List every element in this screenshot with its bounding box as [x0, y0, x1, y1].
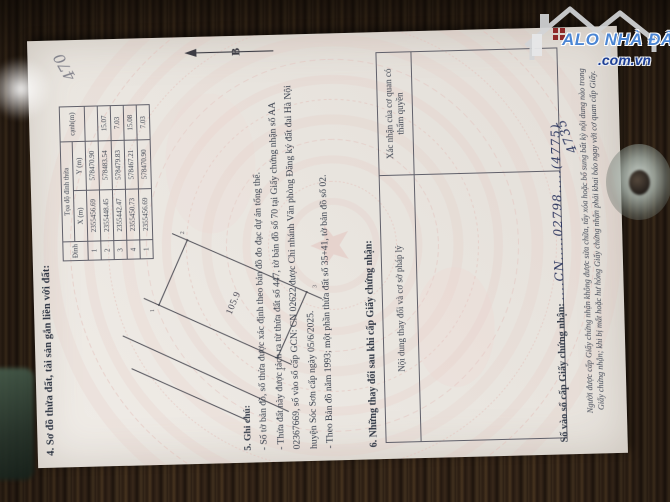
entry-number-label: Số vào sổ cấp Giấy chứng nhận: [556, 303, 571, 442]
footer-fine-print: Người được cấp Giấy chứng nhận không đượ… [575, 31, 608, 449]
section6-heading: 6. Những thay đổi sau khi cấp Giấy chứng… [363, 240, 379, 447]
section5-notes: 5. Ghi chú: - Số tờ bản đồ, số thửa được… [230, 42, 339, 450]
changes-col2-header: Xác nhận của cơ quan có thẩm quyền [376, 52, 414, 176]
certificate-page: 4. Sơ đồ thửa đất, tài sản gắn liền với … [27, 26, 628, 468]
col-y-header: Y (m) [72, 141, 86, 190]
photo-of-land-certificate: 4. Sơ đồ thửa đất, tài sản gắn liền với … [0, 0, 670, 502]
col-vertex-header: Đỉnh [63, 241, 88, 261]
handwritten-page-number: 470 [50, 50, 80, 84]
changes-table-empty-row [411, 48, 567, 442]
col-edge-header: cạnh(m) [59, 106, 85, 142]
certificate-content: 4. Sơ đồ thửa đất, tài sản gắn liền với … [27, 26, 628, 468]
logo-text: ALO NHÀ ĐẤT [562, 30, 670, 50]
glass-knob [606, 144, 670, 220]
logo-domain-text: .com.vn [598, 52, 651, 68]
section4-heading: 4. Sơ đồ thửa đất, tài sản gắn liền với … [41, 265, 57, 456]
vertex-label: 2 [180, 231, 186, 234]
vertex-label: 1 [150, 309, 156, 312]
col-x-header: X (m) [73, 190, 87, 241]
glass-knob-core [629, 170, 650, 195]
glass-reflection [0, 368, 34, 480]
alo-nha-dat-logo: ALO NHÀ ĐẤT .com.vn [520, 0, 670, 82]
changes-table: Nội dung thay đổi và cơ sở pháp lý Xác n… [375, 47, 567, 443]
